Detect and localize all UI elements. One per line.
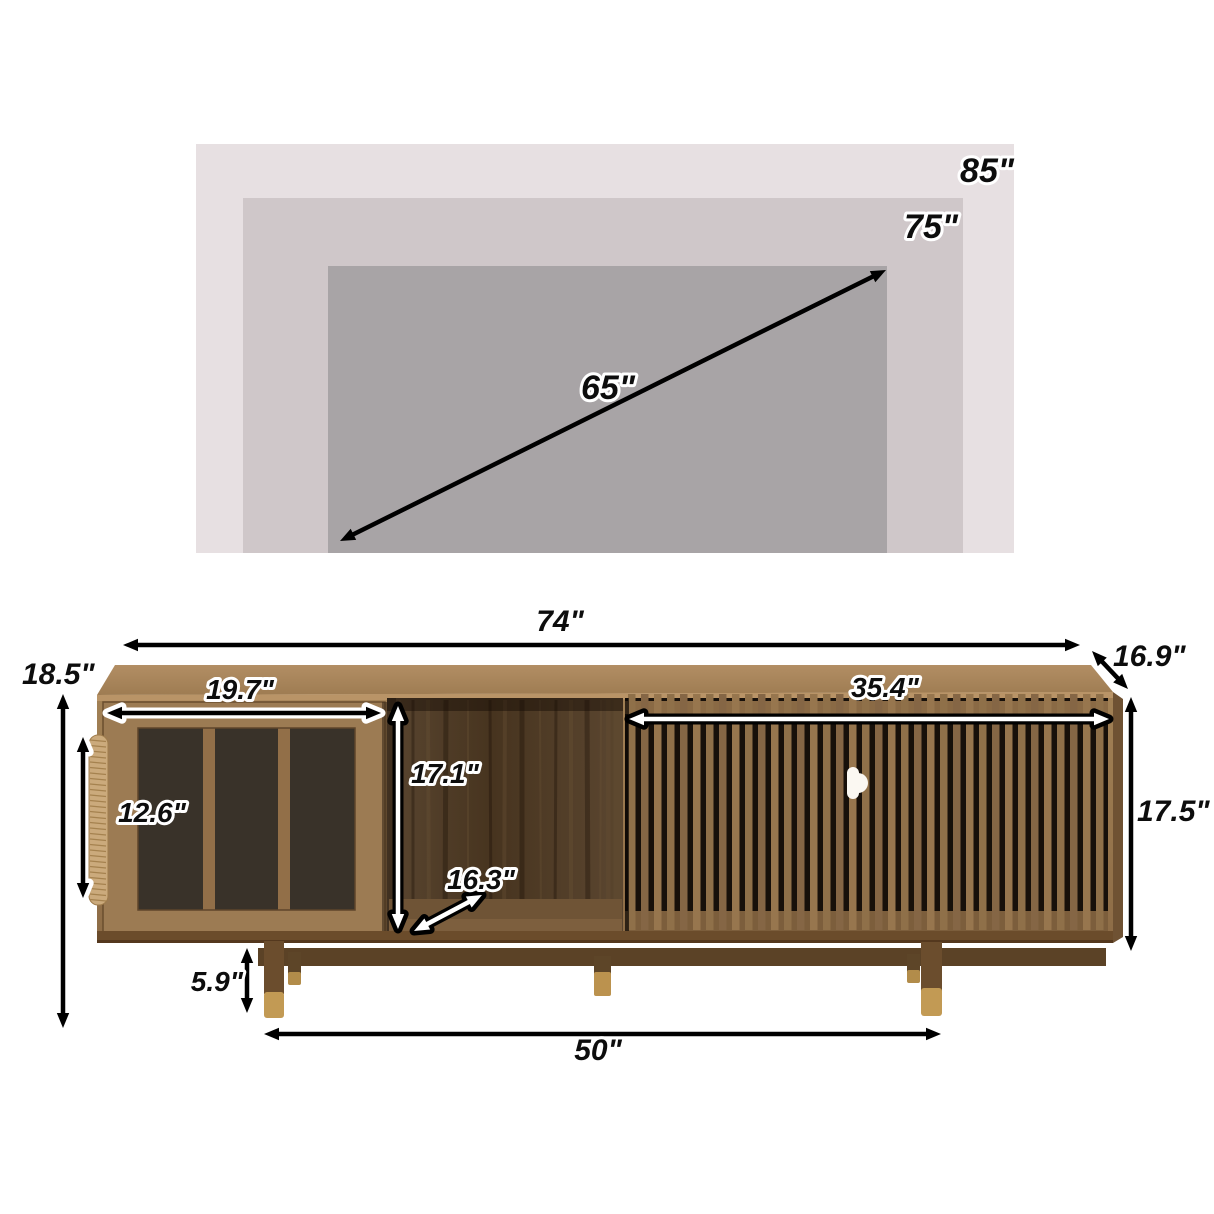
leg-front-right xyxy=(921,942,942,992)
dim-open-shelf-height-label: 17.1" xyxy=(411,758,479,789)
product-dimension-diagram: 85"75"65"74"16.9"18.5"19.7"12.6"17.1"16.… xyxy=(0,0,1214,1214)
leg-front-left xyxy=(264,941,284,994)
dim-slat-door-width-label: 35.4" xyxy=(851,672,919,703)
tv-size-75-label: 75" xyxy=(904,208,959,246)
tv-size-diagram xyxy=(196,144,1014,553)
open-compartment xyxy=(387,698,623,935)
dim-leg-span-label: 50" xyxy=(574,1034,622,1067)
dim-glass-panel-height-label: 12.6" xyxy=(118,797,186,828)
dim-overall-height-label: 18.5" xyxy=(22,658,95,691)
dim-leg-height-label: 5.9" xyxy=(191,966,244,997)
console-bottom-shadow xyxy=(97,940,1113,943)
dim-open-shelf-depth-label: 16.3" xyxy=(447,864,515,895)
dim-body-height-label: 17.5" xyxy=(1137,795,1210,828)
diagram-canvas: 85"75"65"74"16.9"18.5"19.7"12.6"17.1"16.… xyxy=(0,0,1214,1214)
console-apron xyxy=(258,948,1106,966)
console-legs xyxy=(258,941,1106,1018)
leg-front-left-brass-foot xyxy=(264,992,284,1018)
leg-front-right-brass-foot xyxy=(921,988,942,1016)
slat-door xyxy=(625,694,1108,935)
dim-glass-door-width-label: 19.7" xyxy=(206,674,274,705)
dim-depth-label: 16.9" xyxy=(1113,640,1186,673)
console-right-side xyxy=(1113,692,1123,943)
tv-size-85-label: 85" xyxy=(960,152,1015,190)
dim-overall-width-label: 74" xyxy=(536,605,584,638)
tv-size-65-label: 65" xyxy=(581,369,636,407)
door-muntin xyxy=(278,728,290,910)
door-muntin xyxy=(203,728,215,910)
